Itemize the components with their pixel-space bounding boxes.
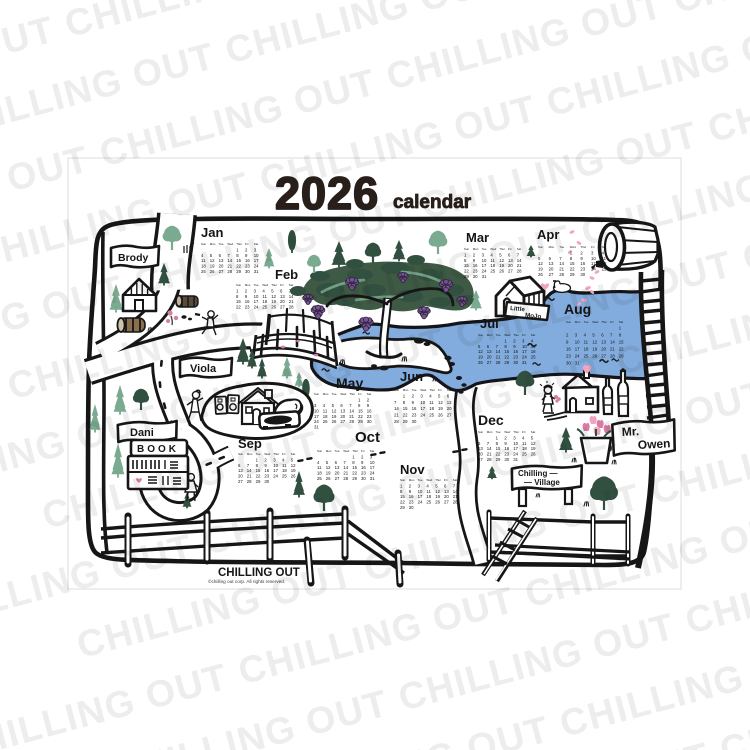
svg-text:10: 10 xyxy=(575,340,580,345)
svg-text:Thur: Thur xyxy=(601,320,607,324)
svg-text:12: 12 xyxy=(326,465,331,470)
svg-text:Tue: Tue xyxy=(496,430,501,434)
svg-text:20: 20 xyxy=(478,452,483,457)
svg-text:Wed: Wed xyxy=(262,283,268,287)
svg-text:13: 13 xyxy=(280,294,285,299)
svg-text:10: 10 xyxy=(370,460,375,465)
svg-text:21: 21 xyxy=(343,471,348,476)
svg-text:19: 19 xyxy=(326,471,331,476)
svg-text:12: 12 xyxy=(332,408,337,413)
svg-text:23: 23 xyxy=(361,471,366,476)
svg-text:Fri: Fri xyxy=(610,320,614,324)
svg-text:28: 28 xyxy=(343,476,348,481)
svg-text:Sat: Sat xyxy=(367,392,372,396)
svg-text:16: 16 xyxy=(566,347,571,352)
svg-text:Tue: Tue xyxy=(412,388,417,392)
svg-text:Thur: Thur xyxy=(513,430,519,434)
svg-text:24: 24 xyxy=(314,419,319,424)
svg-text:13: 13 xyxy=(601,340,606,345)
svg-text:18: 18 xyxy=(317,471,322,476)
svg-text:10: 10 xyxy=(591,256,596,261)
svg-text:19: 19 xyxy=(478,355,483,360)
svg-text:29: 29 xyxy=(504,360,509,365)
svg-text:26: 26 xyxy=(291,474,296,479)
svg-text:Sun: Sun xyxy=(478,430,484,434)
svg-text:15: 15 xyxy=(570,261,575,266)
svg-text:28: 28 xyxy=(559,272,564,277)
svg-text:30: 30 xyxy=(513,360,518,365)
svg-text:27: 27 xyxy=(335,476,340,481)
svg-text:BOOK: BOOK xyxy=(137,444,179,455)
svg-text:Tue: Tue xyxy=(332,392,337,396)
svg-text:14: 14 xyxy=(343,465,348,470)
svg-text:11: 11 xyxy=(317,465,322,470)
svg-text:26: 26 xyxy=(326,476,331,481)
svg-text:17: 17 xyxy=(591,261,596,266)
svg-text:Fri: Fri xyxy=(280,283,284,287)
svg-text:23: 23 xyxy=(580,267,585,272)
svg-text:Mon: Mon xyxy=(326,449,332,453)
svg-text:25: 25 xyxy=(282,474,287,479)
svg-text:13: 13 xyxy=(478,446,483,451)
svg-text:15: 15 xyxy=(352,465,357,470)
svg-text:Tue: Tue xyxy=(254,283,259,287)
svg-text:17: 17 xyxy=(314,414,319,419)
svg-text:26: 26 xyxy=(478,360,483,365)
svg-text:18: 18 xyxy=(531,349,536,354)
svg-text:Feb: Feb xyxy=(275,267,298,282)
svg-text:23: 23 xyxy=(513,355,518,360)
svg-text:27: 27 xyxy=(478,457,483,462)
svg-text:20: 20 xyxy=(601,347,606,352)
svg-text:30: 30 xyxy=(264,479,269,484)
svg-text:28: 28 xyxy=(453,500,458,505)
svg-text:20: 20 xyxy=(335,471,340,476)
svg-text:Fri: Fri xyxy=(522,430,526,434)
svg-text:31: 31 xyxy=(522,360,527,365)
svg-text:Jan: Jan xyxy=(201,225,223,240)
svg-text:20: 20 xyxy=(280,299,285,304)
svg-text:24: 24 xyxy=(591,267,596,272)
svg-text:17: 17 xyxy=(370,465,375,470)
svg-text:Mon: Mon xyxy=(487,430,493,434)
svg-text:25: 25 xyxy=(602,267,607,272)
svg-text:27: 27 xyxy=(487,360,492,365)
svg-text:11: 11 xyxy=(584,340,589,345)
svg-text:13: 13 xyxy=(340,408,345,413)
svg-text:Viola: Viola xyxy=(190,363,217,375)
svg-text:16: 16 xyxy=(580,261,585,266)
svg-text:21: 21 xyxy=(496,355,501,360)
svg-text:Thur: Thur xyxy=(271,283,277,287)
svg-text:Wed: Wed xyxy=(340,392,346,396)
svg-text:Sun: Sun xyxy=(236,283,242,287)
svg-text:30: 30 xyxy=(580,272,585,277)
svg-text:11: 11 xyxy=(602,256,607,261)
svg-text:Sun: Sun xyxy=(394,388,400,392)
svg-text:24: 24 xyxy=(522,355,527,360)
svg-text:14: 14 xyxy=(559,261,564,266)
svg-text:19: 19 xyxy=(538,267,543,272)
svg-text:21: 21 xyxy=(559,267,564,272)
svg-text:Fri: Fri xyxy=(358,392,362,396)
svg-text:26: 26 xyxy=(538,272,543,277)
svg-text:13: 13 xyxy=(487,349,492,354)
svg-text:20: 20 xyxy=(487,355,492,360)
svg-text:15: 15 xyxy=(504,349,509,354)
svg-text:16: 16 xyxy=(361,465,366,470)
svg-text:12: 12 xyxy=(592,340,597,345)
svg-text:28: 28 xyxy=(496,360,501,365)
svg-text:Mon: Mon xyxy=(403,388,409,392)
svg-text:— Village: — Village xyxy=(524,478,560,487)
svg-text:20: 20 xyxy=(549,267,554,272)
svg-text:27: 27 xyxy=(444,500,449,505)
svg-text:Sat: Sat xyxy=(619,320,624,324)
svg-text:22: 22 xyxy=(570,267,575,272)
svg-text:14: 14 xyxy=(496,349,501,354)
svg-text:22: 22 xyxy=(352,471,357,476)
svg-text:11: 11 xyxy=(323,408,328,413)
svg-text:18: 18 xyxy=(602,261,607,266)
svg-text:Sat: Sat xyxy=(289,283,294,287)
svg-text:10: 10 xyxy=(314,408,319,413)
svg-text:Wed: Wed xyxy=(504,430,510,434)
svg-text:22: 22 xyxy=(504,355,509,360)
svg-text:31: 31 xyxy=(314,425,319,430)
svg-text:Thur: Thur xyxy=(349,392,355,396)
svg-text:Mon: Mon xyxy=(245,283,251,287)
svg-text:25: 25 xyxy=(531,355,536,360)
svg-text:25: 25 xyxy=(317,476,322,481)
svg-text:17: 17 xyxy=(522,349,527,354)
svg-text:11: 11 xyxy=(531,344,536,349)
svg-text:13: 13 xyxy=(335,465,340,470)
svg-text:27: 27 xyxy=(549,272,554,277)
svg-text:16: 16 xyxy=(513,349,518,354)
svg-text:10: 10 xyxy=(522,344,527,349)
svg-text:29: 29 xyxy=(570,272,575,277)
